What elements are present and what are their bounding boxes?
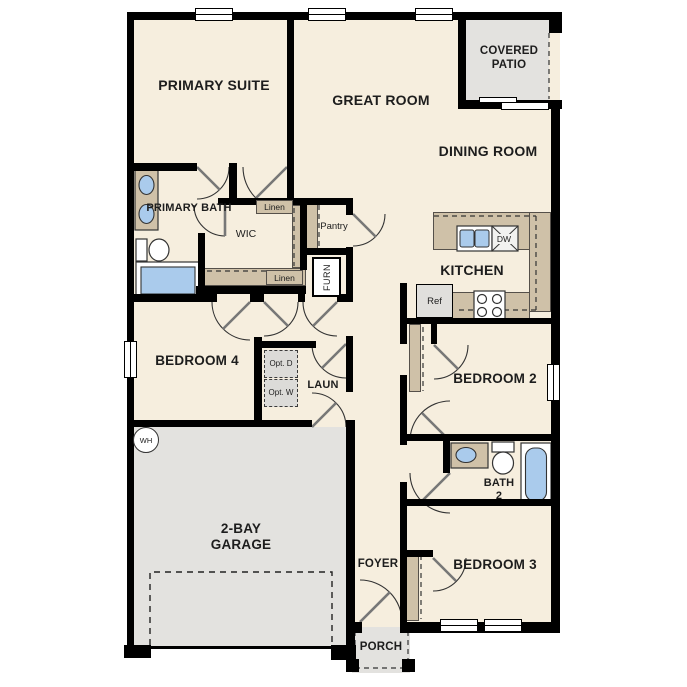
porch-post-left xyxy=(346,659,359,672)
furnace-label: FURN xyxy=(322,264,332,291)
room-label-bedroom3: BEDROOM 3 xyxy=(443,557,547,573)
room-label-primary-suite: PRIMARY SUITE xyxy=(154,77,274,94)
bedroom3-closet-shelf xyxy=(406,553,419,621)
room-label-primary-bath: PRIMARY BATH xyxy=(145,202,233,215)
wall-bath-bottom-c xyxy=(298,294,305,302)
wall-bath2-top xyxy=(403,434,551,441)
kitchen-counter-bottom xyxy=(452,292,530,320)
optional-washer-icon: Opt. W xyxy=(264,379,298,407)
refrigerator-label: Ref xyxy=(427,296,442,307)
dishwasher-label: DW xyxy=(496,234,512,244)
linen-upper-label: Linen xyxy=(264,202,285,212)
optional-dryer-label: Opt. D xyxy=(269,360,292,369)
wall-bath2-bottom xyxy=(403,499,551,506)
furnace-closet: FURN xyxy=(312,257,341,297)
room-label-kitchen: KITCHEN xyxy=(422,262,522,279)
wall-bath2-left-stub xyxy=(443,441,450,473)
linen-closet-lower: Linen xyxy=(266,270,303,285)
wall-suite-right xyxy=(287,12,294,198)
window-bedroom2 xyxy=(547,364,560,401)
garage-door-line xyxy=(150,646,331,649)
wall-hall-left-a xyxy=(346,198,353,215)
room-label-great-room: GREAT ROOM xyxy=(331,92,431,109)
window-great-room-1 xyxy=(308,8,346,21)
wall-bed4-laundry-divider xyxy=(254,337,262,427)
window-great-room-2 xyxy=(415,8,453,21)
wall-bedroom3-closet-top xyxy=(403,550,433,557)
wall-bath-bottom-b xyxy=(250,294,264,302)
room-label-dining-room: DINING ROOM xyxy=(438,143,538,160)
room-label-porch: PORCH xyxy=(353,641,409,655)
water-heater-label: WH xyxy=(140,436,153,445)
wall-closet-band-bottom xyxy=(196,286,306,294)
wall-bedroom2-top xyxy=(400,318,558,324)
wall-laundry-top xyxy=(258,341,316,348)
room-label-bedroom2: BEDROOM 2 xyxy=(443,371,547,387)
wall-hall-left-c xyxy=(346,336,353,392)
window-primary-suite xyxy=(195,8,233,21)
pantry-label: Pantry xyxy=(308,221,360,232)
room-label-bedroom4: BEDROOM 4 xyxy=(147,353,247,369)
room-label-wic: WIC xyxy=(228,228,264,240)
window-bedroom3-2 xyxy=(484,619,522,632)
wall-suite-bottom xyxy=(127,163,197,171)
porch-post-right xyxy=(402,659,415,672)
window-bedroom4 xyxy=(124,341,137,378)
optional-dryer-icon: Opt. D xyxy=(264,350,298,378)
window-bedroom3-1 xyxy=(440,619,478,632)
patio-slider-panel-2 xyxy=(501,102,549,110)
floor-plan: Linen Linen FURN Ref DW Opt. D Opt. W WH… xyxy=(0,0,687,687)
linen-lower-label: Linen xyxy=(274,273,295,283)
room-label-laundry: LAUN xyxy=(301,379,345,392)
wall-kitchen-hall xyxy=(400,283,407,344)
bedroom2-closet-shelf xyxy=(409,324,421,392)
wall-bedroom3-bottom xyxy=(400,622,560,633)
wall-bedroom2-door-stub xyxy=(431,324,437,344)
refrigerator-icon: Ref xyxy=(416,284,453,318)
water-heater-icon: WH xyxy=(133,427,159,453)
wall-bath-bottom-a xyxy=(127,294,217,302)
linen-closet-upper: Linen xyxy=(256,200,293,214)
room-label-garage: 2-BAY GARAGE xyxy=(191,521,291,553)
kitchen-counter-right xyxy=(529,212,551,312)
dishwasher-label-box: DW xyxy=(490,232,518,245)
optional-washer-label: Opt. W xyxy=(269,389,294,398)
wall-left xyxy=(127,12,134,658)
room-label-foyer: FOYER xyxy=(352,558,404,572)
wall-garage-top xyxy=(127,420,312,427)
room-label-covered-patio: COVERED PATIO xyxy=(463,45,555,72)
room-label-bath2: BATH 2 xyxy=(479,477,519,503)
wall-wic-pantry-divider xyxy=(300,205,307,270)
wall-garage-post-left xyxy=(124,645,151,658)
wall-patio-corner-post xyxy=(549,12,562,33)
wall-foyer-bottom-post xyxy=(346,622,362,633)
